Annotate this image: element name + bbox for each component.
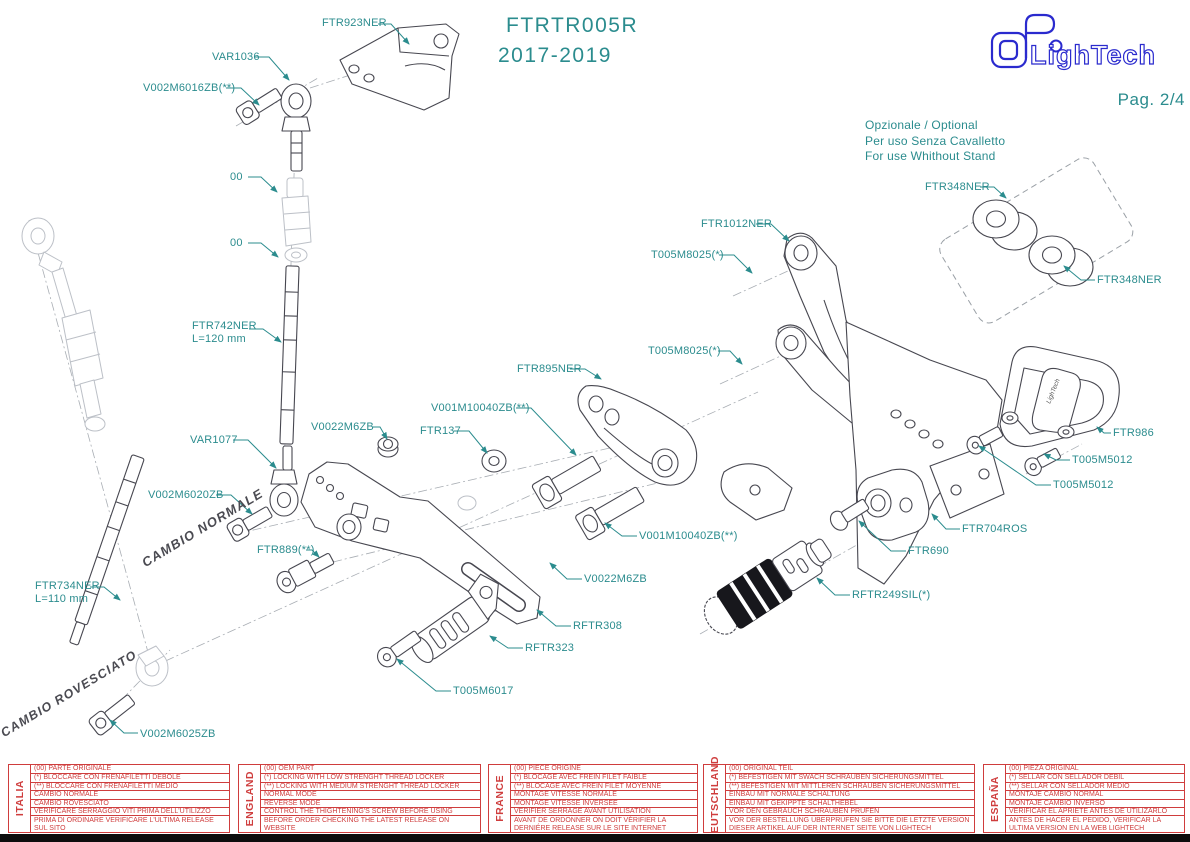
part-label-00: 00 — [230, 237, 243, 250]
leader-line — [397, 659, 451, 691]
part-label-v001m10040zb: V001M10040ZB(**) — [431, 402, 530, 415]
country-label-cell: ENGLAND — [239, 765, 261, 832]
legend-table-espaa: ESPAÑA(00) PIEZA ORIGINAL(*) SELLAR CON … — [983, 764, 1185, 833]
legend-table-france: FRANCE(00) PIECE ORIGINE(*) BLOCAGE AVEC… — [488, 764, 698, 833]
legend-row: VERIFICARE SERRAGGIO VITI PRIMA DELL'UTI… — [31, 807, 229, 815]
part-label-v001m10040zb: V001M10040ZB(**) — [639, 530, 738, 543]
page-number: Pag. 2/4 — [1085, 90, 1185, 110]
optional-note-line: For use Whithout Stand — [865, 149, 1005, 165]
leader-line — [1064, 266, 1095, 280]
legend-row: (**) BLOCCARE CON FRENAFILETTI MEDIO — [31, 782, 229, 790]
part-label-sub: L=110 mm — [35, 593, 100, 606]
leader-line — [1097, 427, 1111, 433]
legend-table-england: ENGLAND(00) OEM PART(*) LOCKING WITH LOW… — [238, 764, 481, 833]
part-label-rftr249sil: RFTR249SIL(*) — [852, 589, 930, 602]
legend-rows: (00) OEM PART(*) LOCKING WITH LOW STRENG… — [261, 765, 480, 832]
part-label-v0022m6zb: V0022M6ZB — [584, 573, 647, 586]
part-label-var1077: VAR1077 — [190, 434, 238, 447]
country-label: FRANCE — [494, 775, 506, 822]
optional-note-line: Opzionale / Optional — [865, 118, 1005, 134]
legend-row: (**) BLOCAGE AVEC FREIN FILET MOYENNE — [511, 782, 697, 790]
legend-row: BEFORE ORDER CHECKING THE LATEST RELEASE… — [261, 815, 480, 832]
legend-row: (00) PARTE ORIGINALE — [31, 765, 229, 773]
legend-row: CONTROL THE THIGHTENING'S SCREW BEFORE U… — [261, 807, 480, 815]
part-label-t005m5012: T005M5012 — [1072, 454, 1133, 467]
leader-line — [233, 440, 276, 468]
legend-row: VERIFICAR EL APRIETE ANTES DE UTILIZARLO — [1006, 807, 1184, 815]
legend-tables: ITALIA(00) PARTE ORIGINALE(*) BLOCCARE C… — [0, 764, 1190, 834]
legend-row: MONTAGE VITESSE NORMALE — [511, 790, 697, 798]
legend-row: ANTES DE HACER EL PEDIDO, VERIFICAR LA U… — [1006, 815, 1184, 832]
country-label-cell: FRANCE — [489, 765, 511, 832]
country-label: DEUTSCHLAND — [709, 756, 721, 841]
optional-note-line: Per uso Senza Cavalletto — [865, 134, 1005, 150]
leader-line — [516, 408, 576, 455]
legend-row: VOR DER BESTELLUNG ÜBERPRÜFEN SIE BITTE … — [726, 815, 974, 832]
callout-leader-lines — [0, 0, 1190, 842]
leader-line — [550, 563, 582, 579]
legend-row: REVERSE MODE — [261, 799, 480, 807]
legend-row: (00) ORIGINAL TEIL — [726, 765, 974, 773]
legend-row: VOR DEN GEBRAUCH SCHRAUBEN PRÜFEN — [726, 807, 974, 815]
country-label: ITALIA — [14, 780, 26, 816]
part-label-rftr323: RFTR323 — [525, 642, 574, 655]
legend-rows: (00) PARTE ORIGINALE(*) BLOCCARE CON FRE… — [31, 765, 229, 832]
leader-line — [490, 636, 523, 648]
part-label-t005m8025: T005M8025(*) — [648, 345, 721, 358]
part-label-v002m6016zb: V002M6016ZB(**) — [143, 82, 235, 95]
leader-line — [932, 514, 960, 529]
legend-row: (00) PIECE ORIGINE — [511, 765, 697, 773]
leader-line — [817, 578, 850, 595]
legend-row: CAMBIO NORMALE — [31, 790, 229, 798]
part-label-00: 00 — [230, 171, 243, 184]
legend-row: (**) LOCKING WITH MEDIUM STRENGHT THREAD… — [261, 782, 480, 790]
legend-row: NORMAL MODE — [261, 790, 480, 798]
legend-row: (00) PIEZA ORIGINAL — [1006, 765, 1184, 773]
leader-line — [718, 351, 742, 364]
country-label-cell: DEUTSCHLAND — [704, 765, 726, 832]
part-label-ftr742ner: FTR742NERL=120 mm — [192, 320, 257, 345]
part-label-v0022m6zb: V0022M6ZB — [311, 421, 374, 434]
part-label-v002m6020zb: V002M6020ZB — [148, 489, 224, 502]
bottom-bar — [0, 834, 1190, 842]
leader-line — [372, 427, 387, 439]
legend-row: MONTAJE CAMBIO NORMAL — [1006, 790, 1184, 798]
part-label-ftr1012ner: FTR1012NER — [701, 218, 772, 231]
legend-row: (**) SELLAR CON SELLADOR MEDIO — [1006, 782, 1184, 790]
leader-line — [979, 446, 1051, 485]
legend-row: AVANT DE ORDONNER ON DOIT VÉRIFIER LA DE… — [511, 815, 697, 832]
legend-row: PRIMA DI ORDINARE VERIFICARE L'ULTIMA RE… — [31, 815, 229, 832]
country-label: ENGLAND — [244, 771, 256, 826]
page-title-years: 2017-2019 — [498, 44, 612, 68]
page-title-model: FTRTR005R — [506, 14, 638, 38]
legend-row: (**) BEFESTIGEN MIT MITTLEREN SCHRAUBEN … — [726, 782, 974, 790]
part-label-ftr348ner: FTR348NER — [1097, 274, 1162, 287]
legend-row: (*) SELLAR CON SELLADOR DEBIL — [1006, 773, 1184, 781]
legend-row: VERIFIER SERRAGE AVANT UTILISATION — [511, 807, 697, 815]
part-label-ftr889: FTR889(**) — [257, 544, 315, 557]
part-label-var1036: VAR1036 — [212, 51, 260, 64]
legend-table-deutschland: DEUTSCHLAND(00) ORIGINAL TEIL(*) BEFESTI… — [703, 764, 975, 833]
leader-line — [248, 243, 278, 257]
legend-row: MONTAJE CAMBIO INVERSO — [1006, 799, 1184, 807]
part-label-ftr895ner: FTR895NER — [517, 363, 582, 376]
legend-row: CAMBIO ROVESCIATO — [31, 799, 229, 807]
optional-note: Opzionale / Optional Per uso Senza Caval… — [865, 118, 1005, 165]
leader-line — [248, 177, 277, 192]
legend-rows: (00) ORIGINAL TEIL(*) BEFESTIGEN MIT SWA… — [726, 765, 974, 832]
legend-row: (00) OEM PART — [261, 765, 480, 773]
part-label-ftr734ner: FTR734NERL=110 mm — [35, 580, 100, 605]
part-label-t005m6017: T005M6017 — [453, 685, 514, 698]
leader-line — [1044, 454, 1070, 460]
legend-row: (*) BLOCAGE AVEC FREIN FILET FAIBLE — [511, 773, 697, 781]
leader-line — [719, 255, 752, 273]
part-label-ftr690: FTR690 — [908, 545, 949, 558]
country-label: ESPAÑA — [989, 776, 1001, 822]
leader-line — [537, 610, 571, 626]
legend-row: EINBAU MIT GEKIPPTE SCHALTHEBEL — [726, 799, 974, 807]
part-label-ftr137: FTR137 — [420, 425, 461, 438]
part-label-ftr348ner: FTR348NER — [925, 181, 990, 194]
part-label-rftr308: RFTR308 — [573, 620, 622, 633]
country-label-cell: ITALIA — [9, 765, 31, 832]
leader-line — [859, 521, 906, 551]
part-label-t005m8025: T005M8025(*) — [651, 249, 724, 262]
legend-row: (*) BLOCCARE CON FRENAFILETTI DEBOLE — [31, 773, 229, 781]
country-label-cell: ESPAÑA — [984, 765, 1006, 832]
part-label-sub: L=120 mm — [192, 333, 257, 346]
legend-row: EINBAU MIT NORMALE SCHALTUNG — [726, 790, 974, 798]
part-label-ftr986: FTR986 — [1113, 427, 1154, 440]
leader-line — [110, 720, 138, 733]
legend-row: (*) LOCKING WITH LOW STRENGHT THREAD LOC… — [261, 773, 480, 781]
legend-rows: (00) PIEZA ORIGINAL(*) SELLAR CON SELLAD… — [1006, 765, 1184, 832]
part-label-ftr704ros: FTR704ROS — [962, 523, 1027, 536]
legend-table-italia: ITALIA(00) PARTE ORIGINALE(*) BLOCCARE C… — [8, 764, 230, 833]
legend-rows: (00) PIECE ORIGINE(*) BLOCAGE AVEC FREIN… — [511, 765, 697, 832]
leader-line — [605, 523, 637, 536]
part-label-t005m5012: T005M5012 — [1053, 479, 1114, 492]
part-label-v002m6025zb: V002M6025ZB — [140, 728, 216, 741]
legend-row: (*) BEFESTIGEN MIT SWACH SCHRAUBEN SICHE… — [726, 773, 974, 781]
legend-row: MONTAGE VITESSE INVERSEE — [511, 799, 697, 807]
part-label-ftr923ner: FTR923NER — [322, 17, 387, 30]
